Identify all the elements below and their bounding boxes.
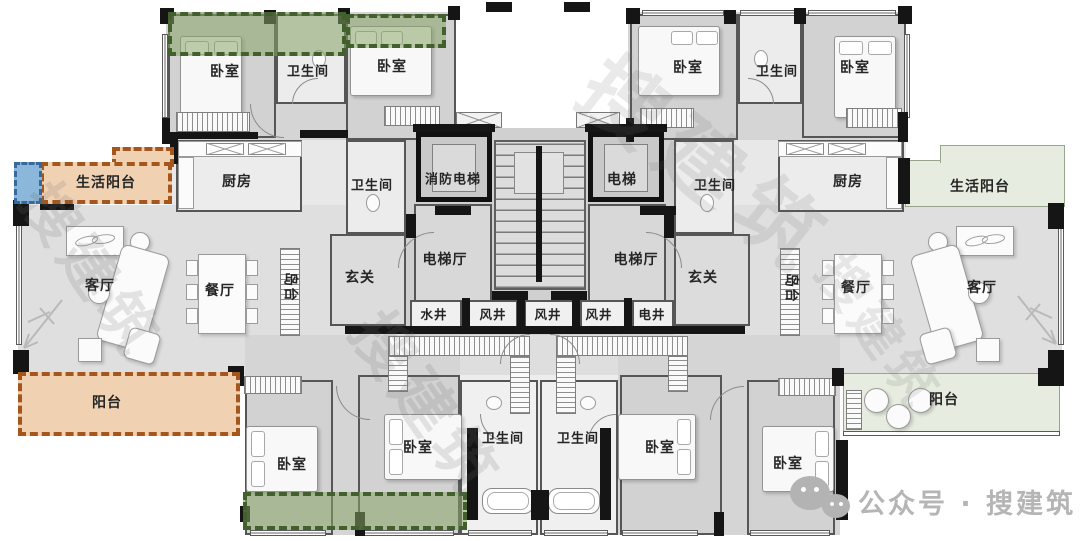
wall-segment — [714, 512, 724, 536]
wechat-icon-eye — [830, 502, 834, 506]
window — [622, 530, 698, 536]
closet-run — [556, 356, 576, 414]
wechat-icon-eye — [801, 487, 806, 492]
pillow — [696, 31, 718, 45]
wall-segment — [166, 132, 258, 139]
highlight-balcony-left — [18, 372, 240, 436]
window — [843, 431, 1060, 436]
wall-segment — [724, 10, 736, 24]
wall-segment — [413, 124, 495, 132]
label-bathroom: 卫生间 — [557, 433, 599, 446]
label-foyer: 玄关 — [688, 271, 718, 285]
counter-x-panel — [248, 143, 286, 155]
wechat-icon-small — [822, 494, 850, 518]
label-bedroom: 卧室 — [840, 61, 870, 75]
pillow — [389, 449, 403, 475]
wall-segment — [600, 428, 611, 520]
wall-segment — [462, 298, 470, 328]
kitchen-counter — [178, 157, 194, 209]
wardrobe — [244, 376, 302, 394]
wall-segment — [162, 118, 170, 144]
closet-run — [510, 356, 530, 414]
chair — [186, 260, 198, 276]
label-elevator-hall: 电梯厅 — [614, 253, 659, 267]
window — [740, 10, 796, 16]
floor-plan: 卧室 卫生间 卧室 厨房 生活阳台 卫生间 玄关 客厅 餐厅 岛台 阳台 卧室 … — [0, 0, 1080, 541]
wall-segment — [486, 2, 512, 12]
wall-segment — [406, 214, 416, 238]
sketch-arrow — [1012, 292, 1064, 350]
label-kitchen: 厨房 — [222, 175, 252, 189]
wall-segment — [1038, 368, 1064, 386]
bathtub — [548, 488, 600, 514]
wall-segment — [517, 298, 525, 328]
toilet — [580, 396, 596, 410]
pillow — [868, 41, 892, 55]
pillow — [677, 449, 691, 475]
pillow — [251, 431, 265, 457]
pillow — [839, 41, 863, 55]
chair — [186, 284, 198, 300]
wall-segment — [664, 214, 674, 238]
highlight-green-top-b — [346, 14, 446, 48]
stair-rail — [536, 146, 542, 282]
label-bathroom: 卫生间 — [287, 66, 329, 79]
window — [750, 530, 830, 536]
counter-x-panel — [828, 143, 866, 155]
window — [468, 530, 532, 536]
chair — [246, 284, 258, 300]
wall-segment — [572, 298, 580, 328]
wall-segment — [564, 2, 590, 12]
wall-segment — [300, 130, 348, 138]
wall-segment — [794, 8, 806, 24]
wardrobe — [778, 378, 836, 396]
label-foyer: 玄关 — [345, 271, 375, 285]
label-bedroom: 卧室 — [210, 65, 240, 79]
bathtub — [482, 488, 534, 514]
wall-segment — [551, 291, 587, 300]
window — [544, 530, 608, 536]
window — [642, 10, 724, 16]
label-fire-elevator: 消防电梯 — [425, 174, 481, 187]
bed — [834, 36, 896, 118]
label-balcony: 阳台 — [92, 396, 122, 410]
bathtub-basin — [553, 492, 595, 510]
tv-cabinet — [956, 226, 1014, 256]
pillow — [815, 431, 829, 457]
wall-segment — [435, 206, 471, 215]
label-living-room: 客厅 — [967, 281, 997, 295]
watermark-account: 公众号 · 搜建筑 — [858, 482, 1076, 521]
highlight-green-top-a — [168, 12, 346, 56]
label-island: 岛台 — [283, 272, 297, 302]
label-bathroom: 卫生间 — [351, 180, 393, 193]
window — [360, 530, 454, 536]
wall-segment — [898, 6, 912, 24]
highlight-green-bottom — [243, 492, 467, 530]
wardrobe — [384, 106, 440, 126]
label-elevator-hall: 电梯厅 — [423, 253, 468, 267]
wechat-icon-eye — [839, 502, 843, 506]
label-air-shaft: 风井 — [585, 309, 612, 322]
closet-run — [668, 356, 688, 392]
chair — [186, 308, 198, 324]
label-bedroom: 卧室 — [277, 458, 307, 472]
window — [904, 34, 910, 118]
pillow — [671, 31, 693, 45]
wall-segment — [531, 490, 549, 520]
wechat-icon-eye — [814, 487, 819, 492]
wall-segment — [626, 8, 640, 24]
wall-segment — [448, 6, 460, 20]
toilet — [366, 194, 380, 212]
label-air-shaft: 风井 — [534, 309, 561, 322]
pillow — [251, 461, 265, 487]
label-electric-shaft: 电井 — [638, 309, 665, 322]
label-bedroom: 卧室 — [377, 60, 407, 74]
wall-segment — [832, 368, 844, 386]
pillow — [677, 419, 691, 445]
bathtub-basin — [487, 492, 529, 510]
label-air-shaft: 风井 — [479, 309, 506, 322]
chair — [246, 260, 258, 276]
label-bathroom: 卫生间 — [756, 66, 798, 79]
wardrobe — [176, 112, 250, 132]
counter-x-panel — [206, 143, 244, 155]
wall-segment — [898, 158, 910, 204]
service-balcony-right-notch — [940, 145, 1065, 163]
window — [250, 530, 326, 536]
balcony-plant — [846, 390, 862, 430]
label-dining-room: 餐厅 — [205, 284, 235, 298]
wall-segment — [1048, 203, 1064, 229]
wall-segment — [624, 298, 632, 328]
wardrobe — [846, 108, 902, 128]
wall-segment — [898, 112, 908, 142]
label-bedroom: 卧室 — [645, 441, 675, 455]
label-bedroom: 卧室 — [773, 457, 803, 471]
side-table — [976, 338, 1000, 362]
label-service-balcony: 生活阳台 — [950, 180, 1010, 194]
sketch-arrow — [16, 296, 68, 354]
chair — [246, 308, 258, 324]
window — [808, 10, 896, 16]
